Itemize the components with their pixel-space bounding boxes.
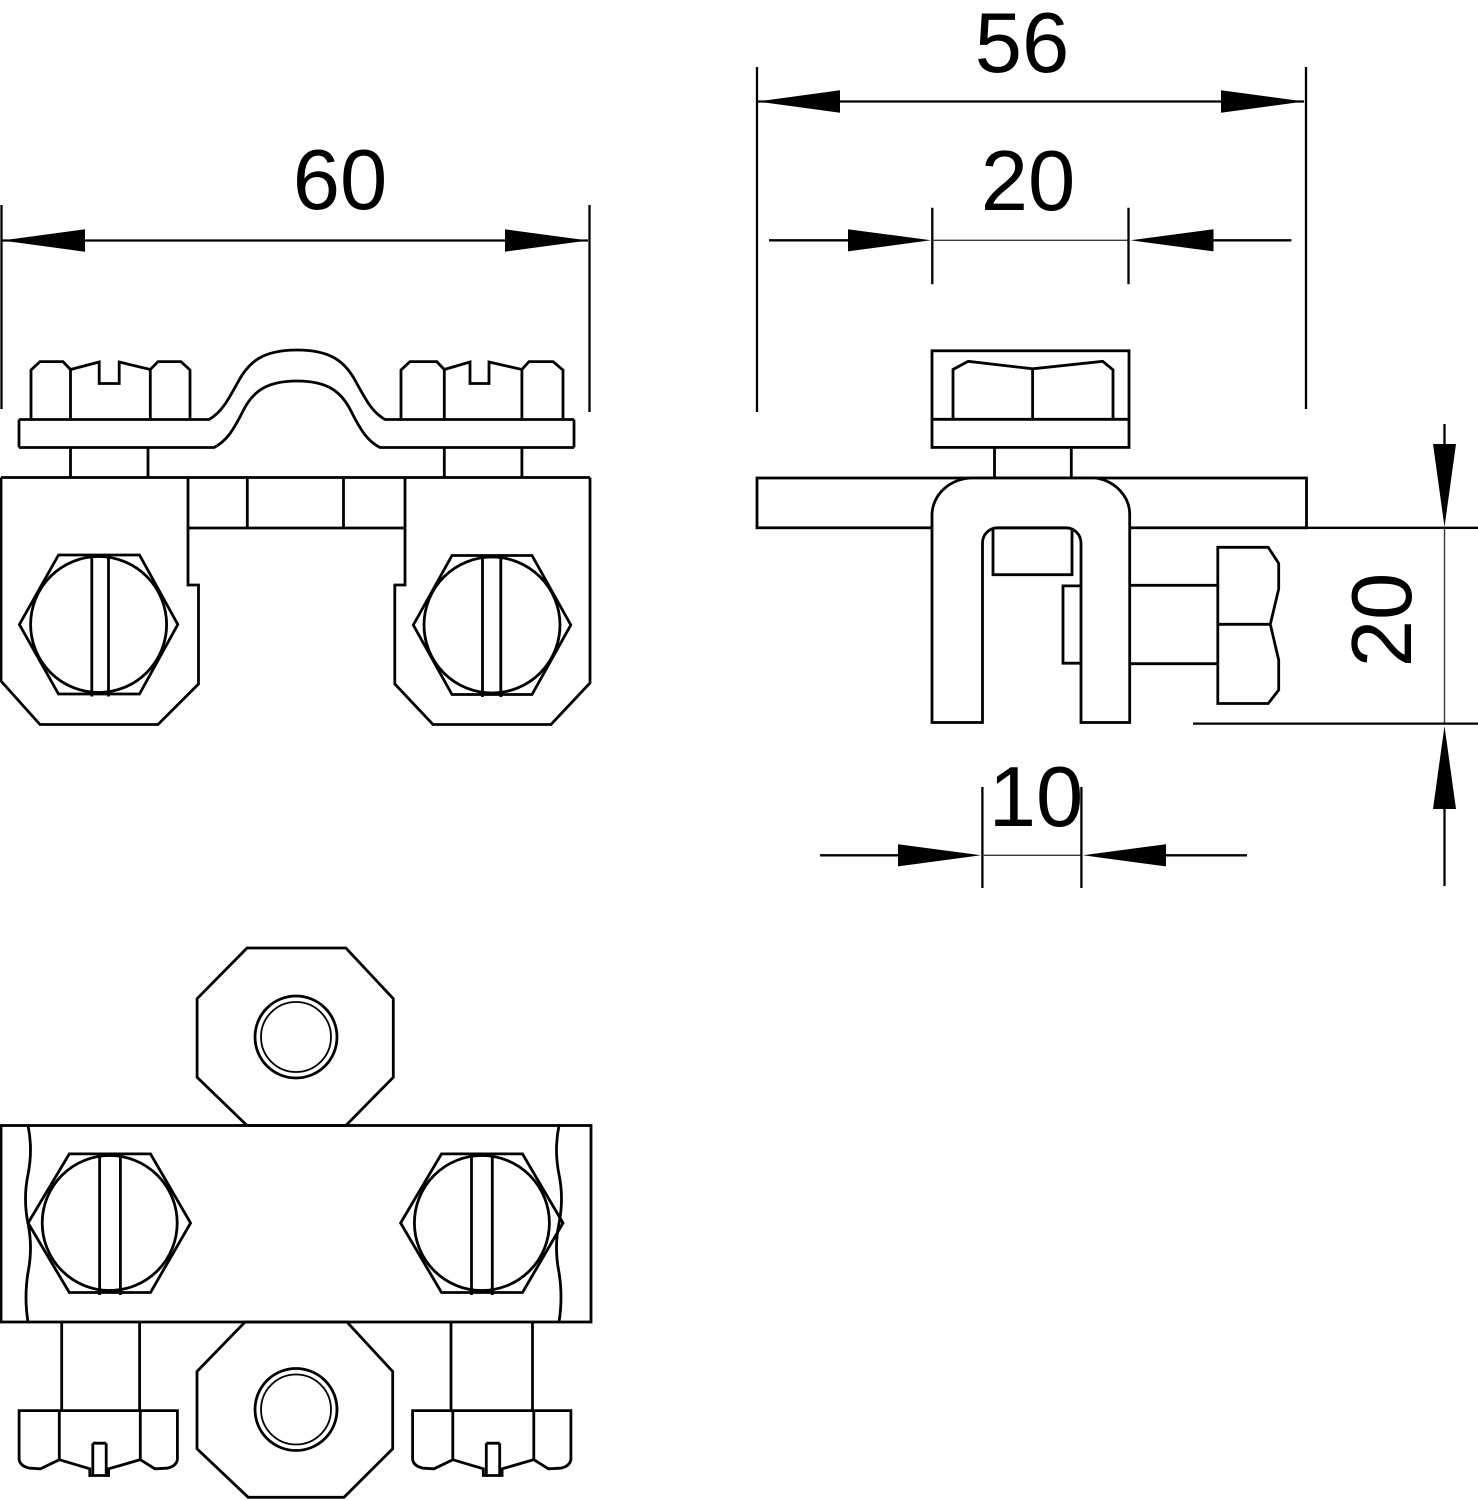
svg-text:20: 20 bbox=[981, 134, 1076, 229]
svg-text:56: 56 bbox=[975, 0, 1070, 91]
svg-text:10: 10 bbox=[989, 750, 1084, 845]
svg-text:60: 60 bbox=[293, 133, 388, 228]
svg-text:20: 20 bbox=[1335, 573, 1430, 668]
